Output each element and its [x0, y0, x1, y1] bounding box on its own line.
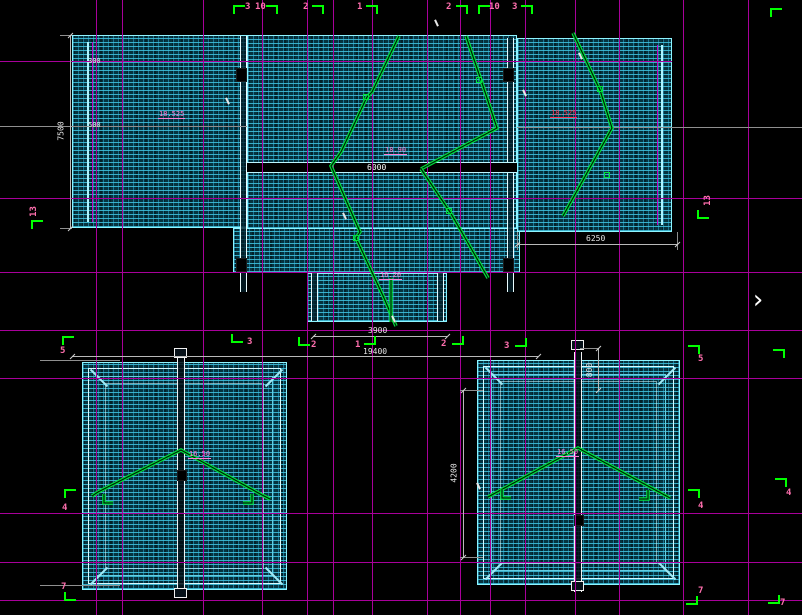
grid-bubble-label-5-14: 5	[60, 347, 65, 356]
dim-7500-text: 7500	[58, 121, 66, 140]
offset-label-0: 300	[88, 57, 101, 65]
dim-4200-text: 4200	[451, 463, 459, 482]
grid-marker-bracket-14	[62, 336, 74, 345]
grid-bubble-label-4-15: 4	[62, 504, 67, 513]
grid-marker-bracket-15	[64, 489, 76, 498]
grid-marker-bracket-5	[478, 5, 490, 14]
grid-marker-bracket-10	[452, 336, 464, 345]
elevation-label-4: 16.50	[188, 451, 211, 459]
grid-marker-bracket-2	[312, 5, 324, 14]
grid-bubble-label-10-5: 10	[489, 3, 500, 12]
dim-3900-text: 3900	[368, 327, 387, 335]
grid-bubble-label-7-19: 7	[698, 587, 703, 596]
rotated-annotation-mark-0	[225, 97, 230, 104]
grid-bubble-label-13-13: 13	[704, 195, 713, 206]
rotated-annotation-mark-5	[476, 482, 481, 489]
grid-bubble-label-2-10: 2	[441, 340, 446, 349]
grid-bubble-label-7-21: 7	[780, 599, 785, 608]
grid-marker-bracket-8	[298, 337, 310, 346]
grid-bubble-label-5-17: 5	[698, 355, 703, 364]
grid-bubble-label-3-7: 3	[247, 338, 252, 347]
grid-bubble-label-2-4: 2	[446, 3, 451, 12]
grid-marker-bracket-0	[233, 5, 245, 14]
grid-marker-bracket-16	[64, 592, 76, 601]
grid-bubble-label-10-1: 10	[255, 3, 266, 12]
hip-jog-mark-2	[476, 77, 482, 83]
hip-jog-mark-4	[597, 86, 603, 92]
dim-800-text: 800	[586, 363, 594, 377]
rotated-annotation-mark-1	[342, 212, 347, 219]
grid-marker-bracket-13	[697, 210, 709, 219]
rotated-annotation-mark-3	[522, 89, 527, 96]
pan-right-arrow[interactable]: ›	[750, 287, 766, 313]
grid-bubble-label-3-6: 3	[512, 3, 517, 12]
grid-bubble-label-1-9: 1	[355, 341, 360, 350]
grid-bubble-label-4-20: 4	[786, 489, 791, 498]
grid-marker-bracket-4	[456, 5, 468, 14]
elevation-label-0: 18.525	[158, 111, 185, 119]
elevation-label-2: 18.90	[384, 147, 407, 155]
grid-marker-bracket-20	[770, 8, 782, 17]
grid-marker-bracket-23	[768, 595, 780, 604]
cad-viewport[interactable]: 6000 75006250390019400420080030050018.52…	[0, 0, 802, 615]
annotations-layer: 75006250390019400420080030050018.52518.5…	[0, 0, 802, 615]
grid-bubble-label-3-11: 3	[504, 342, 509, 351]
grid-marker-bracket-19	[686, 596, 698, 605]
grid-marker-bracket-6	[521, 5, 533, 14]
grid-bubble-label-7-16: 7	[61, 583, 66, 592]
grid-bubble-label-13-12: 13	[30, 206, 39, 217]
rotated-annotation-mark-6	[391, 315, 396, 322]
rotated-annotation-mark-2	[434, 19, 439, 26]
hip-jog-mark-3	[446, 208, 452, 214]
grid-marker-bracket-1	[266, 5, 278, 14]
grid-marker-bracket-17	[688, 345, 700, 354]
grid-bubble-label-4-18: 4	[698, 502, 703, 511]
grid-marker-bracket-12	[31, 220, 43, 229]
elevation-label-1: 18.525	[550, 110, 577, 118]
hip-jog-mark-1	[353, 235, 359, 241]
grid-marker-bracket-3	[366, 5, 378, 14]
grid-marker-bracket-21	[773, 349, 785, 358]
rotated-annotation-mark-4	[578, 52, 583, 59]
hip-jog-mark-0	[363, 94, 369, 100]
grid-marker-bracket-11	[515, 338, 527, 347]
grid-marker-bracket-18	[688, 489, 700, 498]
grid-bubble-label-1-3: 1	[357, 3, 362, 12]
grid-bubble-label-2-8: 2	[311, 341, 316, 350]
grid-marker-bracket-7	[231, 334, 243, 343]
grid-marker-bracket-22	[775, 478, 787, 487]
dim-19400-text: 19400	[363, 348, 387, 356]
offset-label-1: 500	[88, 121, 101, 129]
grid-marker-bracket-9	[364, 336, 376, 345]
hip-jog-mark-5	[604, 172, 610, 178]
grid-bubble-label-2-2: 2	[303, 3, 308, 12]
elevation-label-3: 16.20	[379, 272, 402, 280]
grid-bubble-label-3-0: 3	[245, 3, 250, 12]
elevation-label-5: 16.50	[556, 449, 579, 457]
dim-6250-text: 6250	[586, 235, 605, 243]
